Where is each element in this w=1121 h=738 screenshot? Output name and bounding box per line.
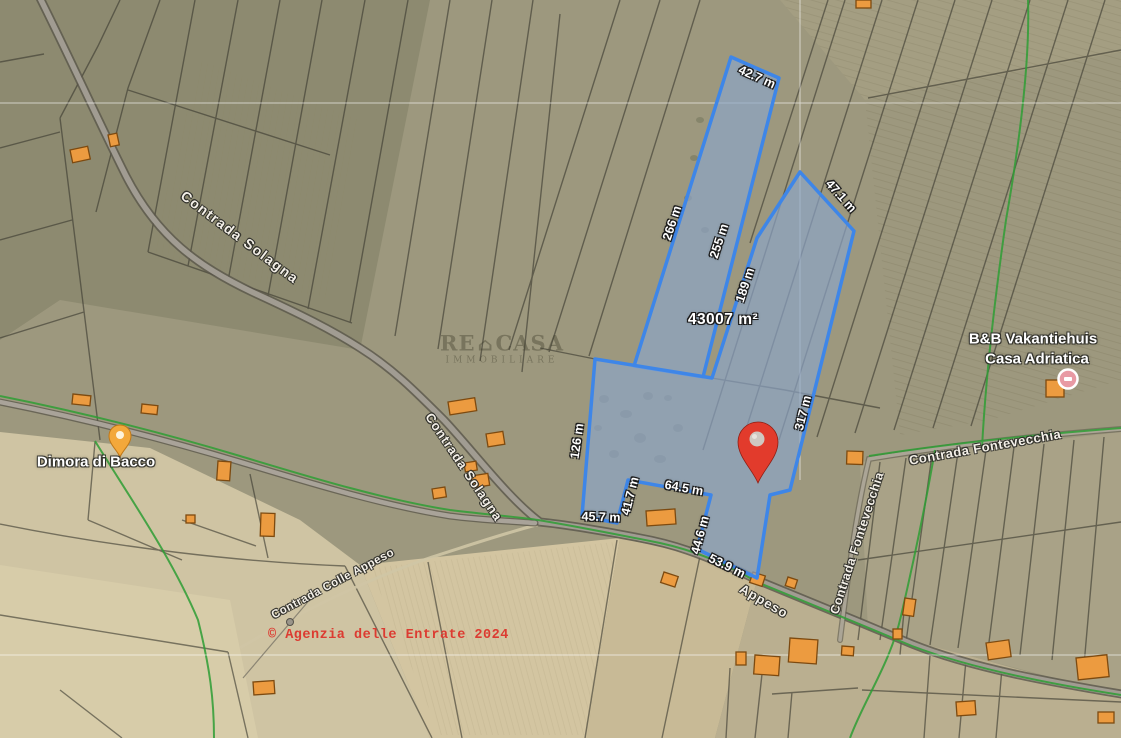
map-canvas[interactable] bbox=[0, 0, 1121, 738]
poi-dot-pink[interactable] bbox=[1059, 370, 1078, 389]
terrain-patches bbox=[0, 0, 1121, 738]
satellite-map[interactable]: 42.7 m 47.1 m 266 m 255 m 189 m 317 m 12… bbox=[0, 0, 1121, 738]
